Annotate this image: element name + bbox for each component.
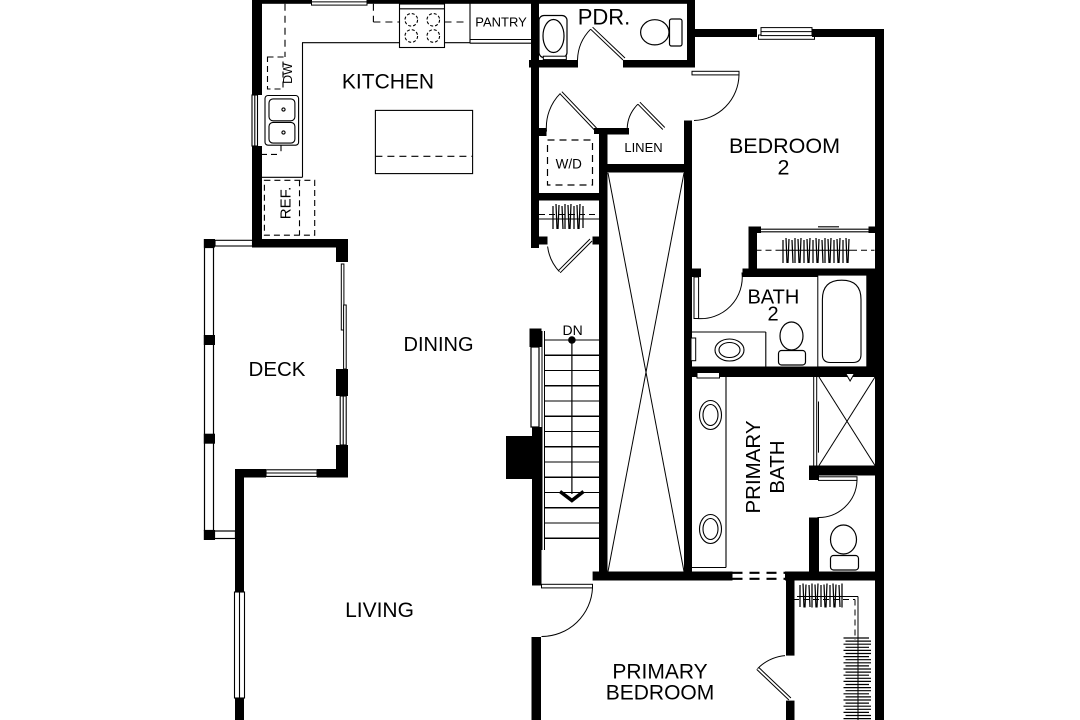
svg-text:BATH: BATH: [766, 440, 789, 493]
svg-text:DECK: DECK: [249, 358, 306, 381]
svg-text:PRIMARY: PRIMARY: [742, 420, 765, 513]
svg-text:DW: DW: [281, 63, 295, 84]
svg-text:DINING: DINING: [404, 334, 474, 356]
svg-text:PANTRY: PANTRY: [475, 14, 527, 29]
svg-text:2: 2: [767, 303, 778, 325]
svg-text:PDR.: PDR.: [578, 5, 631, 30]
svg-text:BEDROOM: BEDROOM: [606, 682, 715, 705]
svg-text:W/D: W/D: [556, 157, 582, 172]
svg-text:DN: DN: [562, 322, 582, 338]
svg-text:KITCHEN: KITCHEN: [342, 71, 434, 94]
svg-text:REF.: REF.: [278, 187, 295, 220]
svg-text:LINEN: LINEN: [624, 140, 662, 155]
svg-text:BEDROOM: BEDROOM: [729, 134, 840, 158]
svg-text:PRIMARY: PRIMARY: [612, 661, 707, 684]
svg-text:2: 2: [778, 156, 790, 180]
svg-text:LIVING: LIVING: [345, 599, 414, 622]
